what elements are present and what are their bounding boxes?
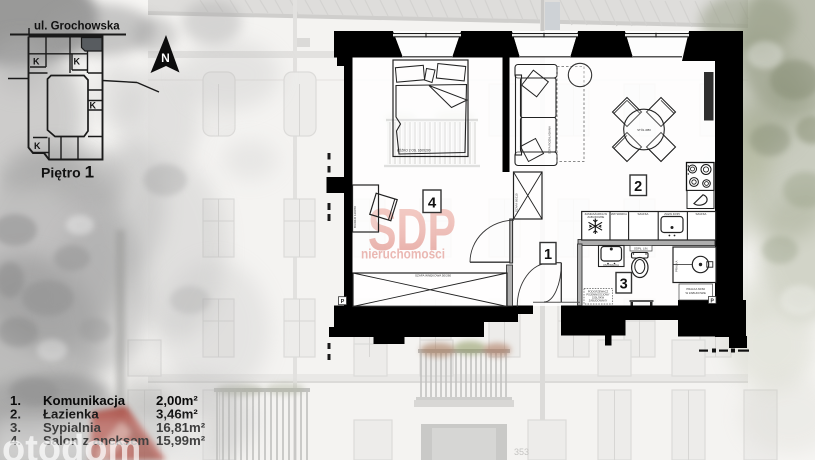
svg-text:SZAFKA: SZAFKA	[638, 212, 649, 216]
svg-text:ZABUDOWANY: ZABUDOWANY	[589, 299, 608, 303]
svg-text:1: 1	[544, 247, 552, 263]
svg-text:P: P	[341, 299, 345, 305]
svg-text:K: K	[90, 101, 97, 111]
svg-text:SZAFA WNĘKOWA 50/260: SZAFA WNĘKOWA 50/260	[415, 274, 451, 278]
svg-text:PRALKA: PRALKA	[675, 261, 679, 272]
svg-text:2: 2	[634, 179, 642, 195]
svg-text:otodom: otodom	[2, 428, 141, 460]
svg-text:SOFA ROZKŁADANA: SOFA ROZKŁADANA	[548, 126, 552, 154]
svg-text:ZLEW 40/35: ZLEW 40/35	[664, 212, 680, 216]
svg-text:ŁÓŻKO 2 OS. 160X200: ŁÓŻKO 2 OS. 160X200	[397, 148, 431, 153]
svg-text:353: 353	[514, 447, 529, 457]
svg-text:nieruchomości: nieruchomości	[361, 247, 445, 262]
svg-text:BIURKO 120X50: BIURKO 120X50	[353, 206, 357, 228]
svg-text:K: K	[33, 57, 40, 67]
svg-text:ul. Grochowska: ul. Grochowska	[34, 21, 120, 33]
svg-text:ZMYWARKA: ZMYWARKA	[611, 212, 627, 216]
svg-text:STÓŁ Ø80: STÓŁ Ø80	[637, 127, 651, 132]
svg-text:W ZABUDOWIE: W ZABUDOWIE	[686, 291, 706, 295]
svg-text:4: 4	[428, 195, 437, 212]
svg-text:ZABUDOWIE: ZABUDOWIE	[587, 215, 604, 219]
svg-text:N: N	[161, 51, 170, 65]
svg-text:UMYWALKA: UMYWALKA	[603, 263, 619, 267]
svg-text:SZAFKA: SZAFKA	[696, 212, 707, 216]
svg-text:SZAFA 60/110: SZAFA 60/110	[515, 193, 519, 212]
svg-text:ODPŁ. LIN.: ODPŁ. LIN.	[634, 247, 649, 251]
svg-text:Piętro 1: Piętro 1	[41, 163, 94, 182]
svg-text:K: K	[34, 141, 41, 151]
svg-text:K: K	[74, 57, 81, 67]
svg-text:3: 3	[620, 277, 628, 293]
